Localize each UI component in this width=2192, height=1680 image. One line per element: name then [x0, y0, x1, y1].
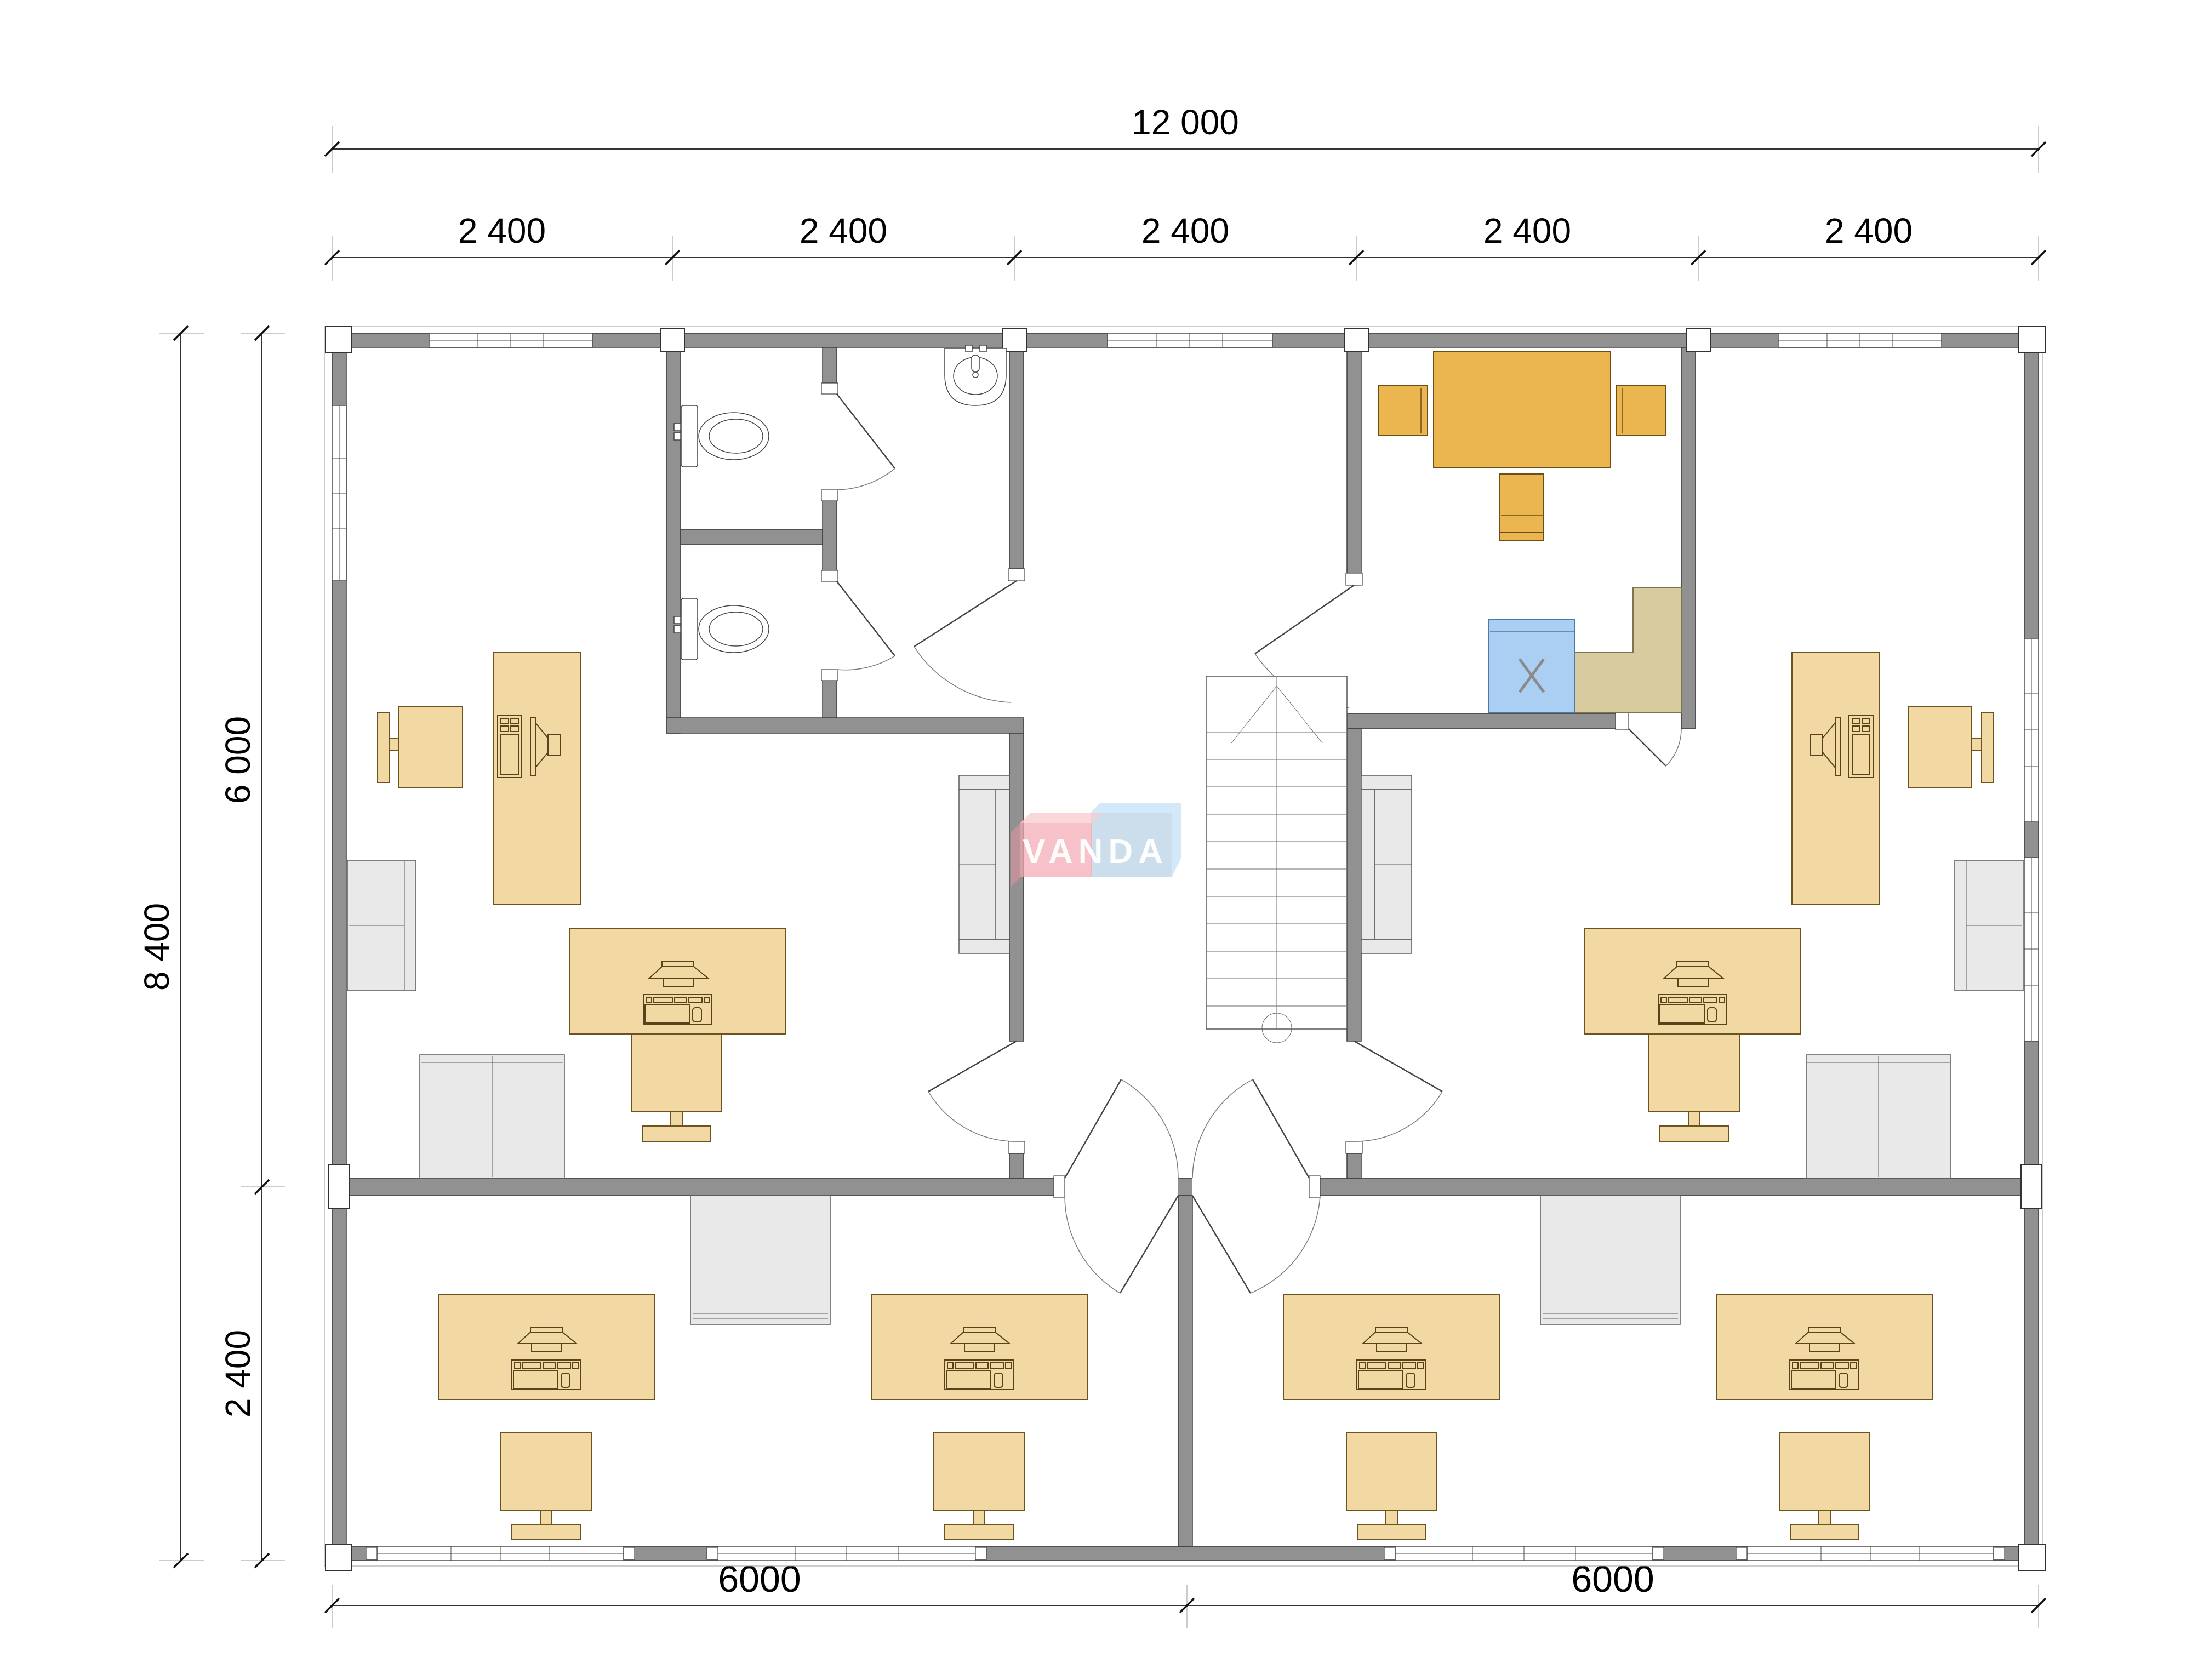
window	[429, 333, 592, 347]
right-office-door	[1354, 1041, 1442, 1141]
window	[718, 1546, 975, 1561]
desk	[871, 1294, 1087, 1399]
desk	[570, 929, 786, 1034]
office-chair	[501, 1433, 591, 1540]
floor-plan-svg: 12 000 2 400 2 400 2 400 2 400 2 400 8 4…	[0, 0, 2192, 1680]
cabinet	[347, 860, 416, 991]
wc-stall-door	[837, 394, 895, 490]
window	[1108, 333, 1272, 347]
desk	[438, 1294, 654, 1399]
desk	[1585, 929, 1801, 1034]
dimension-label-total-width: 12 000	[1132, 102, 1239, 142]
desk	[1716, 1294, 1932, 1399]
kitchen-chair	[1378, 386, 1428, 436]
meeting-table	[1434, 352, 1611, 468]
floor-plan-canvas: 12 000 2 400 2 400 2 400 2 400 2 400 8 4…	[0, 0, 2192, 1680]
window	[1778, 333, 1942, 347]
wc-stall-door	[837, 581, 895, 670]
washroom-door	[914, 581, 1017, 702]
sofa	[959, 775, 1009, 953]
sofa	[1361, 775, 1412, 953]
office-chair	[1908, 707, 1993, 788]
presentation-board	[690, 1196, 830, 1324]
dimension-label-bay: 2 400	[1483, 211, 1571, 250]
office-chair	[631, 1035, 722, 1141]
window	[1395, 1546, 1653, 1561]
sink-icon	[945, 345, 1006, 405]
window	[332, 405, 346, 581]
dimension-label-bottom-span: 6000	[718, 1558, 801, 1600]
dimension-label-bay: 2 400	[1825, 211, 1913, 250]
office-chair	[1649, 1035, 1739, 1141]
staircase	[1206, 676, 1347, 1043]
left-office-door	[928, 1041, 1017, 1141]
kitchen-counter	[1575, 587, 1681, 712]
sideboard	[420, 1055, 564, 1178]
office-chair	[1346, 1433, 1437, 1540]
window	[377, 1546, 624, 1561]
dimension-label-bottom-span: 6000	[1571, 1558, 1654, 1600]
dimension-label-bay: 2 400	[800, 211, 887, 250]
dimension-label-bay: 2 400	[1141, 211, 1229, 250]
kitchen-chair	[1616, 386, 1665, 436]
toilet-icon	[674, 405, 769, 467]
dishwasher	[1489, 620, 1575, 713]
office-chair	[934, 1433, 1024, 1540]
window	[1747, 1546, 1994, 1561]
kitchen-chair	[1500, 474, 1544, 541]
sideboard	[1806, 1055, 1951, 1178]
bathroom	[674, 345, 1006, 660]
vanda-logo-watermark: VANDA	[1011, 803, 1181, 887]
dimension-label-bay: 2 400	[458, 211, 546, 250]
dimension-label-upper-height: 6 000	[218, 716, 258, 804]
office-chair	[378, 707, 463, 788]
kitchen-side-door	[1629, 729, 1681, 766]
dimension-label-total-height: 8 400	[137, 903, 176, 991]
desk	[1283, 1294, 1499, 1399]
cabinet	[1955, 860, 2023, 991]
window	[2024, 858, 2039, 1041]
toilet-icon	[674, 598, 769, 660]
dimension-label-lower-height: 2 400	[218, 1330, 258, 1418]
vanda-logo-text: VANDA	[1023, 833, 1168, 871]
presentation-board	[1540, 1196, 1680, 1324]
window	[2024, 638, 2039, 822]
kitchen-meeting-room	[1378, 352, 1681, 713]
office-chair	[1779, 1433, 1870, 1540]
